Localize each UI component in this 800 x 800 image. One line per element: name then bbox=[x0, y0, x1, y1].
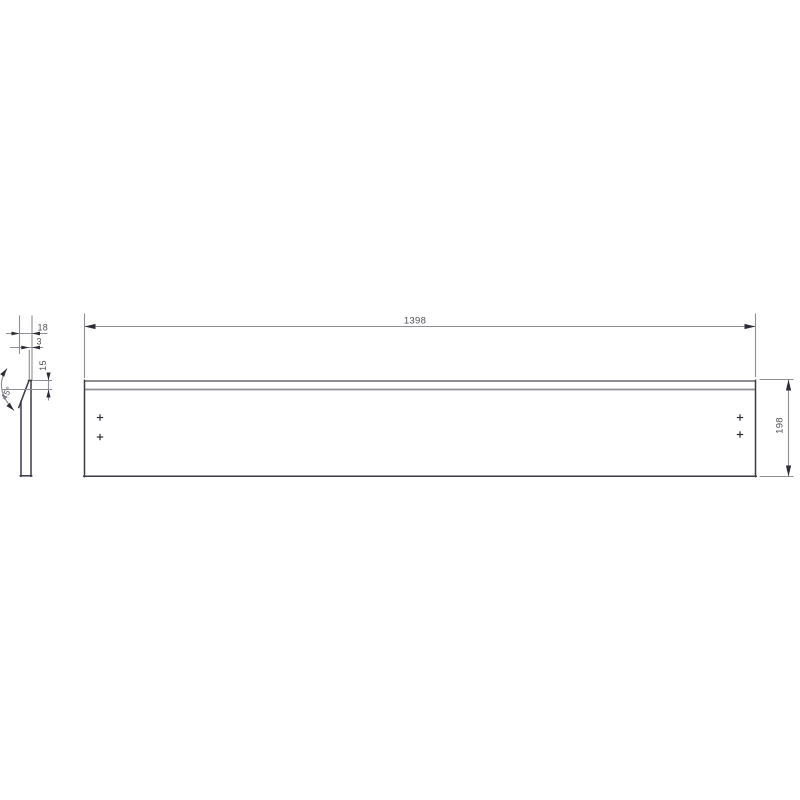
arrowhead-bottom bbox=[46, 390, 50, 398]
length-dimension-label: 1398 bbox=[404, 316, 426, 327]
hole-center-mark bbox=[737, 414, 743, 420]
top-thickness-dimension: 3 bbox=[10, 337, 43, 381]
technical-drawing-canvas: 1398 198 18 bbox=[0, 0, 800, 800]
arrowhead-top bbox=[46, 373, 50, 381]
profile-chamfer-edge bbox=[19, 381, 29, 408]
panel-dimension-drawing: 1398 198 18 bbox=[0, 0, 800, 800]
chamfer-angle-label: 45° bbox=[0, 385, 14, 402]
height-dimension: 198 bbox=[760, 380, 794, 477]
top-thickness-dimension-label: 3 bbox=[37, 337, 42, 347]
arrowhead-left bbox=[85, 324, 96, 329]
arrowhead-top bbox=[786, 380, 791, 391]
height-dimension-label: 198 bbox=[775, 417, 786, 434]
hole-center-mark bbox=[97, 434, 103, 440]
side-view bbox=[19, 381, 32, 477]
hole-center-mark bbox=[737, 431, 743, 437]
arrowhead-left bbox=[21, 346, 29, 350]
front-view bbox=[84, 380, 756, 476]
arrowhead-top bbox=[0, 367, 9, 377]
thickness-dimension-label: 18 bbox=[38, 323, 49, 333]
hole-center-mark bbox=[97, 414, 103, 420]
arrowhead-bottom bbox=[786, 466, 791, 477]
arrowhead-bottom bbox=[6, 403, 15, 412]
chamfer-angle-dimension: 45° bbox=[0, 367, 16, 412]
arrowhead-right bbox=[745, 324, 756, 329]
chamfer-height-dimension-label: 15 bbox=[38, 360, 48, 371]
arrowhead-left bbox=[12, 332, 20, 336]
length-dimension: 1398 bbox=[85, 314, 756, 379]
